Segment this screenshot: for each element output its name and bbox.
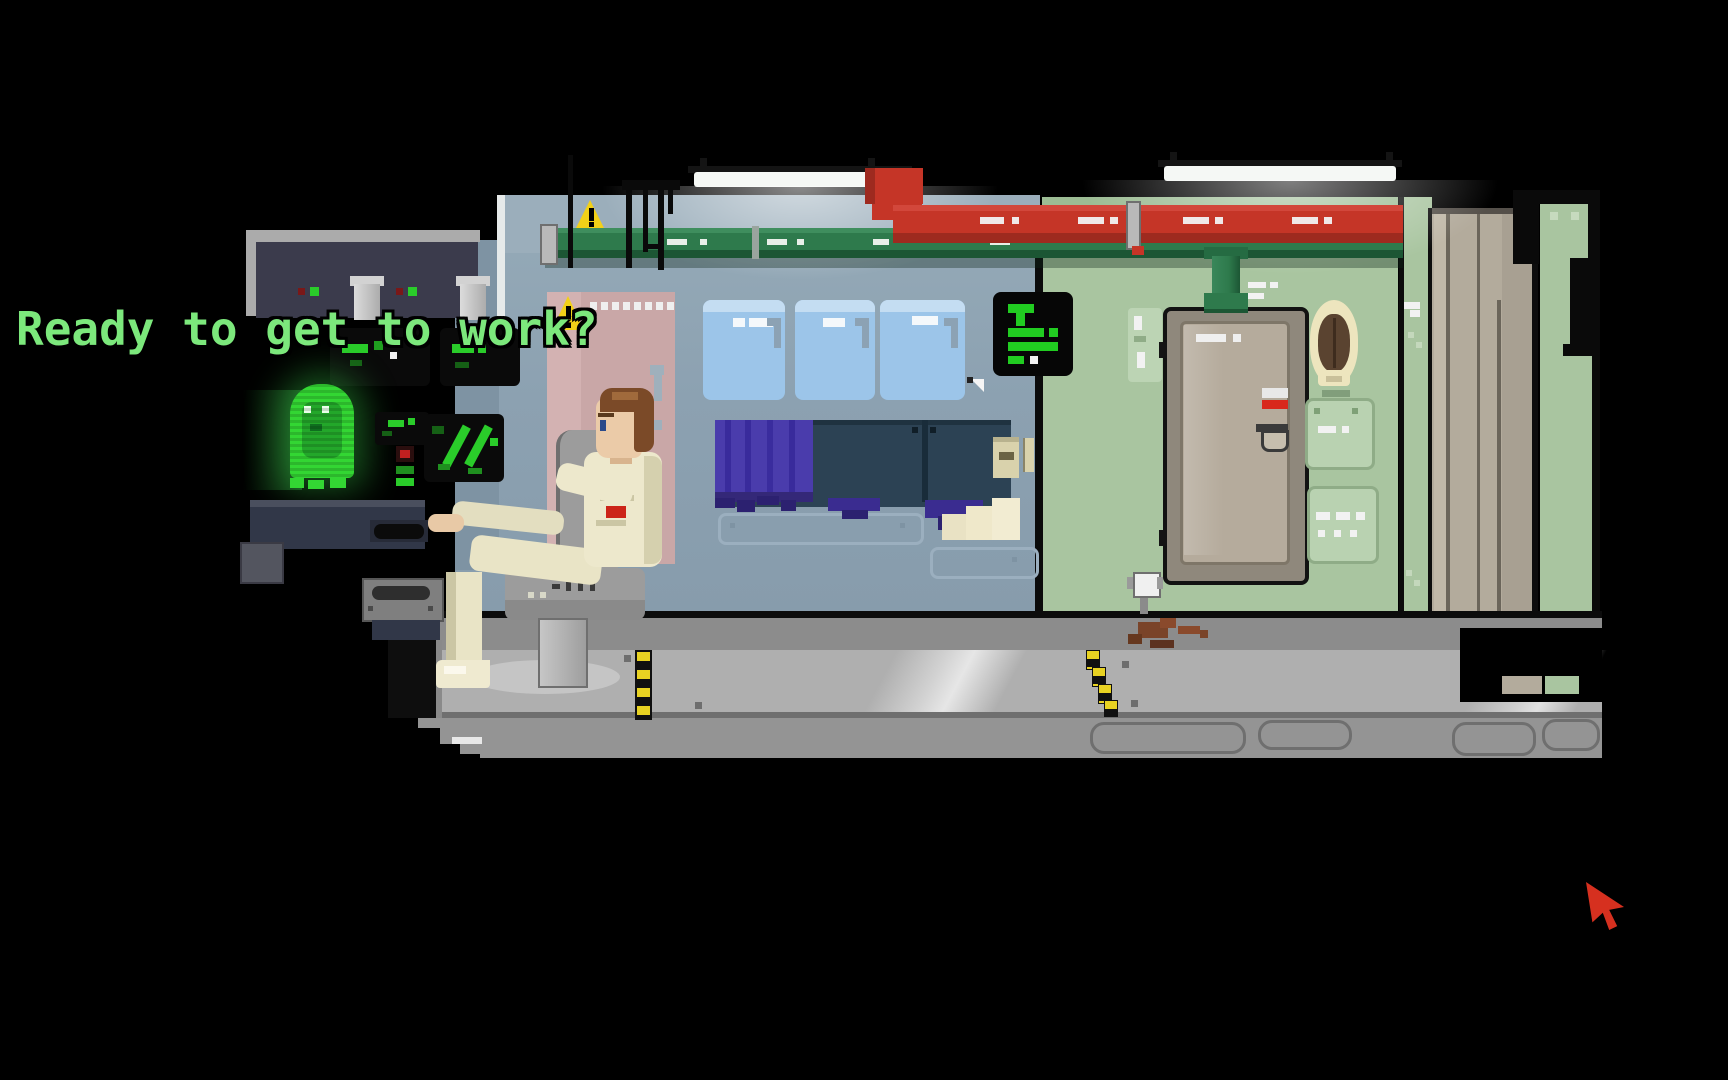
green-pipe-dash-2: [700, 239, 707, 245]
terminal-cursor-dot: [1030, 356, 1038, 364]
console-led-green-2: [408, 287, 417, 296]
pinned-note-1-writing: [999, 452, 1014, 460]
chair-seat-front: [505, 600, 645, 620]
pink-locker-vents: [590, 302, 676, 310]
mirror-tray-notch: [1326, 376, 1342, 382]
locker-seam-3: [1497, 300, 1501, 650]
fascia-vent-4: [1542, 719, 1600, 751]
door-indicator-plate: [1262, 388, 1288, 398]
sage-strip-dot-1: [1408, 332, 1414, 338]
hanging-cable-5: [668, 184, 673, 214]
drive-rivet-a: [368, 606, 373, 611]
terminal-glyph-t-stem: [1016, 311, 1025, 326]
console-green-dash-1: [396, 466, 414, 474]
fascia-dash: [452, 737, 482, 744]
screen-d-dash-1: [438, 464, 450, 470]
sage-strip-dot-2: [1416, 342, 1422, 348]
vent-1-dash-b: [1342, 426, 1349, 433]
chair-dot-1: [528, 592, 534, 598]
hologram-foot-2: [308, 480, 324, 489]
fascia-vent-1: [1090, 722, 1246, 754]
game-screen: Ready to get to work?: [0, 0, 1728, 1080]
wall-sign-mark-3: [1137, 352, 1145, 368]
green-pipe-dash-1: [667, 239, 687, 245]
pinned-note-2[interactable]: [1023, 438, 1034, 472]
light-stem-2b: [1386, 152, 1393, 162]
bunk-bed-sheet-2: [966, 506, 994, 540]
hologram-foot-1: [290, 478, 304, 488]
green-wall-mark-1: [1248, 282, 1266, 288]
red-pipe: [893, 205, 1403, 243]
window-2-latch-stem: [862, 326, 869, 348]
vent-1-screw-b: [1352, 408, 1358, 414]
window-3-latch-stem: [951, 326, 958, 348]
window-1-latch-stem: [774, 326, 781, 348]
hull-notch-tan: [1502, 676, 1542, 694]
curtain-bump-3: [757, 496, 779, 505]
screen-a-bar-3: [350, 360, 362, 366]
red-pipe-dash-3: [1078, 217, 1104, 224]
terminal-bar-3: [1008, 356, 1024, 364]
character-torso-shade: [644, 456, 662, 564]
hologram-foot-3: [330, 478, 346, 488]
hanging-cable-2: [626, 188, 632, 268]
back-floor: [418, 618, 1602, 650]
green-pipe-dash-3: [767, 239, 787, 245]
character-hair-highlight: [612, 392, 638, 400]
chair-tick-2: [566, 582, 571, 591]
locker-seam-2: [1477, 214, 1480, 650]
console-green-dash-2: [396, 478, 414, 486]
door-hinge-top: [1159, 342, 1167, 358]
red-pipe-dash-7: [1292, 217, 1318, 224]
floor-bolt-2: [695, 702, 702, 709]
red-pipe-dash-1: [980, 217, 1004, 224]
green-pipe-clamp: [752, 226, 759, 259]
window-1-latch: [767, 318, 781, 326]
screen-c-bar-2: [382, 431, 392, 436]
floor-bolt-3: [1122, 661, 1129, 668]
console-led-green-1: [310, 287, 319, 296]
hanging-cable-1: [568, 155, 573, 268]
screen-d-dash-2: [468, 468, 482, 474]
hanging-cable-jog: [646, 244, 662, 249]
paper-corner-pin: [967, 377, 973, 383]
sage-strip-mark-2: [1410, 310, 1420, 317]
wall-panel-2: [930, 547, 1039, 579]
vent-2-dot-c: [1350, 530, 1357, 537]
cabin-door-bevel: [1184, 325, 1224, 555]
bunk-peg-a: [912, 427, 918, 433]
console-lower-box: [372, 620, 440, 640]
light-stem-1b: [868, 158, 875, 168]
fascia-vent-3: [1452, 722, 1536, 756]
ceiling-light-2: [1164, 166, 1396, 181]
curtain-bump-1: [715, 498, 735, 508]
floor-bolt-1: [624, 655, 631, 662]
terminal-bar-1: [1008, 328, 1044, 337]
bunk-divider: [922, 420, 928, 502]
window-2-top: [795, 300, 875, 312]
character-brow: [598, 413, 614, 417]
hull-edge-right: [1592, 195, 1600, 628]
red-pipe-dash-2: [1012, 217, 1019, 224]
red-pipe-dash-6: [1215, 217, 1223, 224]
curtain-bump-4: [781, 500, 796, 511]
red-pipe-elbow-shade: [865, 168, 875, 204]
green-pipe-dash-5: [873, 239, 889, 245]
console-tower: [388, 640, 440, 718]
screen-b-bar-3: [455, 362, 469, 368]
light-stem-2a: [1170, 152, 1177, 162]
hull-notch-green: [1545, 676, 1579, 694]
mirror-shadow: [1322, 390, 1350, 397]
character-fold-2: [596, 520, 626, 526]
screen-c-bar: [388, 420, 404, 427]
pillar-dot-2: [1571, 212, 1579, 220]
screen-c-dot: [408, 418, 415, 425]
hazard-strip-2d: [1104, 700, 1118, 717]
window-2-latch: [855, 318, 869, 326]
vent-2-dash-b: [1336, 512, 1350, 520]
chair-pedestal: [538, 618, 588, 688]
character-hand: [428, 514, 464, 532]
floor-stain-6: [1150, 640, 1174, 648]
fascia-step-3: [458, 754, 480, 762]
curtain-bump-2: [737, 500, 755, 512]
green-pipe-endcap: [540, 224, 558, 265]
hazard-strip-1: [635, 650, 652, 720]
door-label-dash-2: [1233, 334, 1241, 342]
red-pipe-dash-8: [1324, 217, 1332, 224]
fascia: [418, 718, 1602, 758]
window-3-latch: [944, 318, 958, 326]
porthole-window-2: [795, 300, 875, 400]
bunk-curtain[interactable]: [715, 420, 813, 500]
floor-stain-4: [1178, 626, 1200, 634]
drive-rivet-b: [428, 606, 433, 611]
console-led-red-2: [396, 288, 403, 295]
green-downpipe-flange: [1204, 293, 1248, 313]
window-3-dash: [912, 316, 938, 325]
console-led-red-1: [298, 288, 305, 295]
floor-stain-3: [1128, 634, 1142, 644]
red-pipe-drip: [1132, 246, 1144, 255]
floor-stain-5: [1200, 630, 1208, 638]
wall-panel-2-screw: [1012, 557, 1017, 562]
terminal-bar-2: [1008, 342, 1058, 351]
wall-vent-2: [1307, 486, 1379, 564]
console-drive-box: [362, 578, 444, 622]
console-side-box: [240, 542, 284, 584]
pillar-dot-1: [1550, 212, 1558, 220]
vent-1-dash-a: [1318, 426, 1336, 433]
wall-knob-tab-l: [1127, 577, 1133, 589]
red-pipe-clamp: [1126, 201, 1141, 250]
character-boot-highlight: [444, 666, 466, 674]
window-3-top: [880, 300, 965, 312]
wall-sign-mark-2: [1134, 336, 1146, 342]
keyboard[interactable]: [374, 524, 424, 539]
floor-stain-2: [1160, 618, 1176, 628]
green-pipe-dash-4: [797, 239, 804, 245]
wall-panel-1-screw-b: [900, 523, 905, 528]
door-label-dash-1: [1196, 334, 1226, 342]
door-hinge-bottom: [1159, 530, 1167, 546]
light-stem-1a: [700, 158, 707, 168]
fascia-step-2: [436, 744, 460, 762]
vent-1-screw-a: [1314, 408, 1320, 414]
pink-locker-hook: [650, 365, 664, 375]
terminal-dot-1: [1049, 328, 1058, 337]
hanging-cable-4: [658, 186, 664, 270]
red-pipe-dash-4: [1110, 217, 1118, 224]
character-eye: [600, 420, 606, 431]
bunk-bed-sheet-3: [992, 498, 1020, 540]
wall-sign-mark-1: [1134, 316, 1142, 330]
chair-dot-2: [540, 592, 546, 598]
porthole-window-3: [880, 300, 965, 400]
suit-red-patch: [606, 506, 626, 518]
bunk-peg-b: [930, 427, 936, 433]
locker-leaf-shade: [1502, 214, 1532, 650]
character-boot: [436, 660, 490, 688]
character-hair-back: [634, 396, 654, 452]
console-frame-top: [246, 230, 480, 242]
green-downpipe: [1212, 256, 1240, 296]
wall-panel-1: [718, 513, 924, 545]
chair-tick-1: [552, 584, 560, 589]
console-drive-slot[interactable]: [372, 586, 430, 600]
floor-bolt-4: [1131, 700, 1138, 707]
red-arrow-cursor: [1586, 882, 1626, 930]
hanging-cable-3: [643, 190, 648, 252]
window-1-top: [703, 300, 785, 312]
vent-2-dot-b: [1334, 530, 1341, 537]
sage-strip-dot-4: [1414, 580, 1420, 586]
hologram-scanlines: [290, 384, 354, 478]
vent-2-dash-a: [1316, 512, 1330, 520]
sage-strip-mark-1: [1404, 302, 1420, 309]
blanket-drape-1b: [842, 510, 868, 519]
console-screen-c[interactable]: [375, 412, 429, 445]
window-1-dash-a: [733, 318, 745, 327]
locker-leaf-highlight: [1434, 214, 1446, 650]
porthole-window-1: [703, 300, 785, 400]
screen-d-dash-3: [432, 426, 444, 434]
sage-strip-dot-3: [1406, 570, 1412, 576]
door-handle[interactable]: [1261, 430, 1289, 452]
vent-2-dot-a: [1318, 530, 1325, 537]
door-indicator-light: [1262, 400, 1288, 409]
green-wall-mark-2: [1270, 282, 1278, 288]
window-2-dash: [823, 318, 845, 327]
locker-edge-right: [1532, 208, 1538, 654]
character-shin-shade: [446, 572, 456, 672]
hull-cutout-left: [1513, 202, 1539, 264]
wall-panel-1-screw-a: [730, 523, 735, 528]
wall-knob-tab-r: [1157, 577, 1163, 589]
pink-locker-hook-stem: [654, 375, 662, 401]
fascia-vent-2: [1258, 720, 1352, 750]
console-led-box-light: [400, 450, 410, 458]
screen-d-dot: [490, 438, 498, 446]
dialogue-text: Ready to get to work?: [16, 302, 598, 356]
mirror-glass-seam: [1333, 318, 1336, 368]
locker-seam-1: [1446, 214, 1450, 650]
vent-2-dash-c: [1356, 512, 1365, 520]
red-pipe-dash-5: [1183, 217, 1209, 224]
